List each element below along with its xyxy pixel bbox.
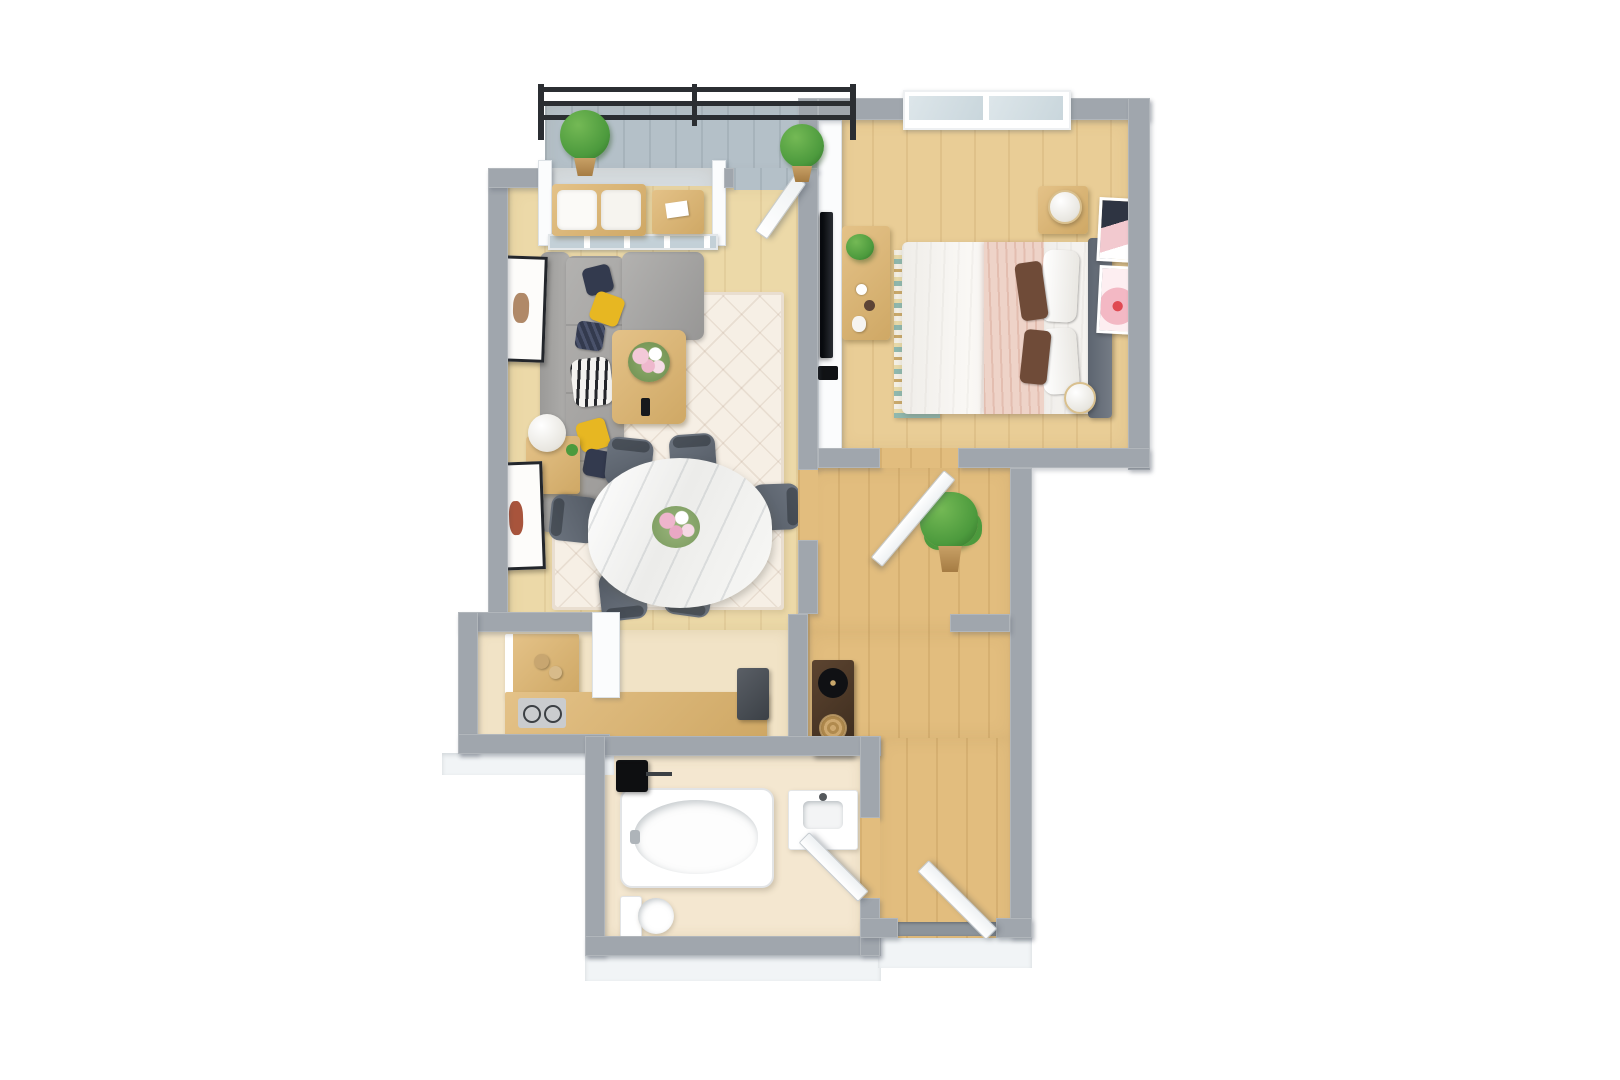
bathtub-basin [634,800,758,874]
window-pane-left [909,96,983,120]
sunroom-bench [552,184,646,236]
exterior-face-bathroom [585,955,881,981]
apartment-floor-plan [0,0,1620,1080]
sunroom-table-magazine [665,201,689,219]
balcony-railing-post-mid [692,84,697,126]
wall-bathroom-bottom [585,936,881,956]
bed-pillow-brown-2 [1019,329,1051,386]
balcony-railing-post-right [850,84,856,140]
coffee-table-flowers [628,342,670,382]
cooktop [518,698,566,728]
kitchen-appliance-cabinet [737,668,769,720]
art-figure-1 [513,293,530,324]
sunroom-table [652,190,704,234]
tv-remote [641,398,650,416]
living-table-lamp [528,414,566,452]
exterior-face-foyer [878,938,1032,968]
sofa-chaise [622,252,704,340]
shower-arm [646,772,672,776]
side-table-plant [566,444,578,456]
art-figure-2 [508,501,523,535]
dining-hallway-opening [798,470,818,540]
tv-screen [820,212,833,358]
wall-dining-foyer-divider [798,540,818,614]
dining-centerpiece-flowers [652,506,700,548]
vanity-faucet [819,793,827,801]
kitchen-jar-1 [534,654,549,669]
burner-right [544,705,562,723]
bench-cushion-2 [601,190,641,230]
desk-vase [852,316,866,332]
wall-foyer-bottom-right [996,918,1032,938]
balcony-plant-right [780,124,824,168]
wall-bathroom-top [585,736,881,756]
window-pane-right [989,96,1063,120]
desk-cup-dark [864,300,875,311]
bedroom-window [903,90,1071,130]
kitchen-jar-2 [549,666,562,679]
sunroom-glass-sliding-doors [548,234,718,250]
wall-bedroom-bottom-right [958,448,1150,468]
desk-cup-white [856,284,867,295]
wall-bedroom-right [1128,98,1150,470]
toilet-bowl [638,898,674,934]
wall-top-door-jamb [724,168,734,188]
wall-bathroom-left [585,736,605,956]
wall-bathroom-right-upper [860,736,880,818]
bedroom-floor-lamp [1064,382,1096,414]
bathtub-faucet [630,830,640,844]
vanity-sink [803,801,843,829]
pillow-navy-striped [574,320,606,352]
bathtub [620,788,774,888]
nightstand-lamp [1048,190,1082,224]
balcony-plant-left [560,110,610,160]
wall-kitchen-partition [592,612,620,698]
shower-fixture [616,760,648,792]
bedroom-door-opening [880,448,958,468]
bench-cushion-1 [557,190,597,230]
throw-zebra [569,356,615,409]
wall-living-bedroom-divider [798,168,818,470]
wall-bedroom-bottom-left [818,448,880,468]
hallway-floor [808,468,1012,632]
wall-living-left [488,168,508,614]
wall-hall-stub [950,614,1010,632]
wall-hall-right [1010,468,1032,938]
floor-plan-stage [0,0,1620,1080]
desk-plant [846,234,874,260]
balcony-railing-post-left [538,84,544,140]
burner-left [523,705,541,723]
vinyl-record-player [818,668,848,698]
wall-kitchen-foyer-divider [788,614,808,744]
foyer-floor-lower [876,738,1012,938]
tv-soundbar [818,366,838,380]
wall-foyer-bottom-left [860,918,898,938]
wall-kitchen-left [458,612,478,754]
